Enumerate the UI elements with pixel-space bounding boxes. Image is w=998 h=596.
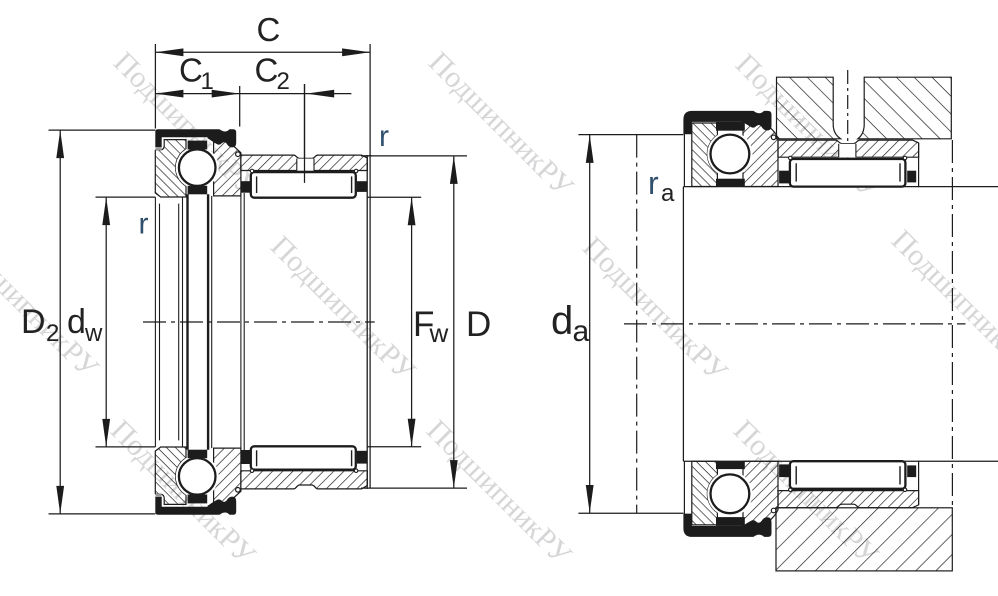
svg-text:C: C xyxy=(255,52,279,89)
svg-text:r: r xyxy=(648,165,659,201)
svg-text:d: d xyxy=(551,299,573,343)
svg-text:C: C xyxy=(257,11,281,48)
svg-text:a: a xyxy=(661,180,675,207)
svg-text:D: D xyxy=(466,305,491,344)
svg-text:2: 2 xyxy=(277,68,290,95)
svg-text:1: 1 xyxy=(201,68,214,95)
svg-text:2: 2 xyxy=(46,320,59,347)
svg-text:a: a xyxy=(573,315,590,348)
svg-text:C: C xyxy=(179,52,203,89)
svg-text:r: r xyxy=(379,120,389,153)
svg-text:d: d xyxy=(67,303,86,341)
svg-text:D: D xyxy=(21,303,46,341)
svg-text:w: w xyxy=(84,320,103,347)
svg-text:w: w xyxy=(429,318,449,348)
svg-text:r: r xyxy=(139,208,149,241)
